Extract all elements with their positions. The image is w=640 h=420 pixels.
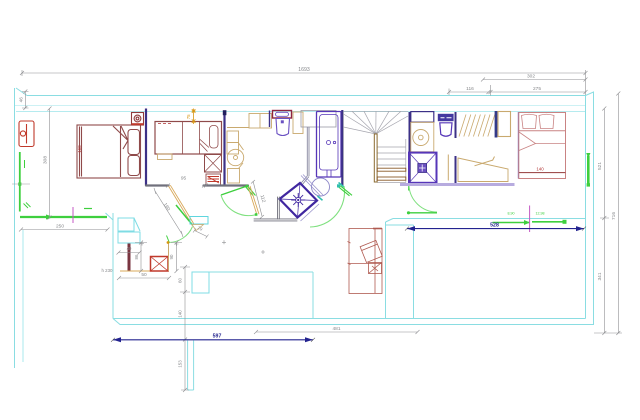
svg-text:12,98: 12,98 xyxy=(536,212,545,216)
svg-text:250: 250 xyxy=(56,223,64,229)
svg-text:95: 95 xyxy=(181,176,187,182)
svg-text:50: 50 xyxy=(141,272,147,278)
svg-text:528: 528 xyxy=(490,222,499,228)
svg-text:160: 160 xyxy=(77,145,82,153)
svg-text:140: 140 xyxy=(178,310,183,318)
svg-text:60: 60 xyxy=(178,278,183,283)
svg-text:716: 716 xyxy=(611,212,617,220)
svg-text:8,90: 8,90 xyxy=(508,212,515,216)
svg-text:90: 90 xyxy=(169,254,174,259)
svg-text:481: 481 xyxy=(332,326,340,332)
svg-text:75: 75 xyxy=(186,114,191,119)
svg-text:116: 116 xyxy=(466,86,474,92)
svg-text:153: 153 xyxy=(178,360,183,368)
svg-text:86: 86 xyxy=(134,254,139,259)
svg-text:341: 341 xyxy=(597,272,603,280)
svg-text:40: 40 xyxy=(127,246,132,251)
svg-text:1693: 1693 xyxy=(298,67,310,73)
svg-text:h 230: h 230 xyxy=(102,268,114,273)
svg-text:275: 275 xyxy=(533,86,541,92)
svg-text:521: 521 xyxy=(597,162,603,170)
svg-text:308: 308 xyxy=(43,156,49,164)
svg-text:46: 46 xyxy=(18,97,23,103)
svg-text:140: 140 xyxy=(536,167,544,172)
svg-text:302: 302 xyxy=(527,73,535,79)
svg-text:597: 597 xyxy=(213,334,222,340)
